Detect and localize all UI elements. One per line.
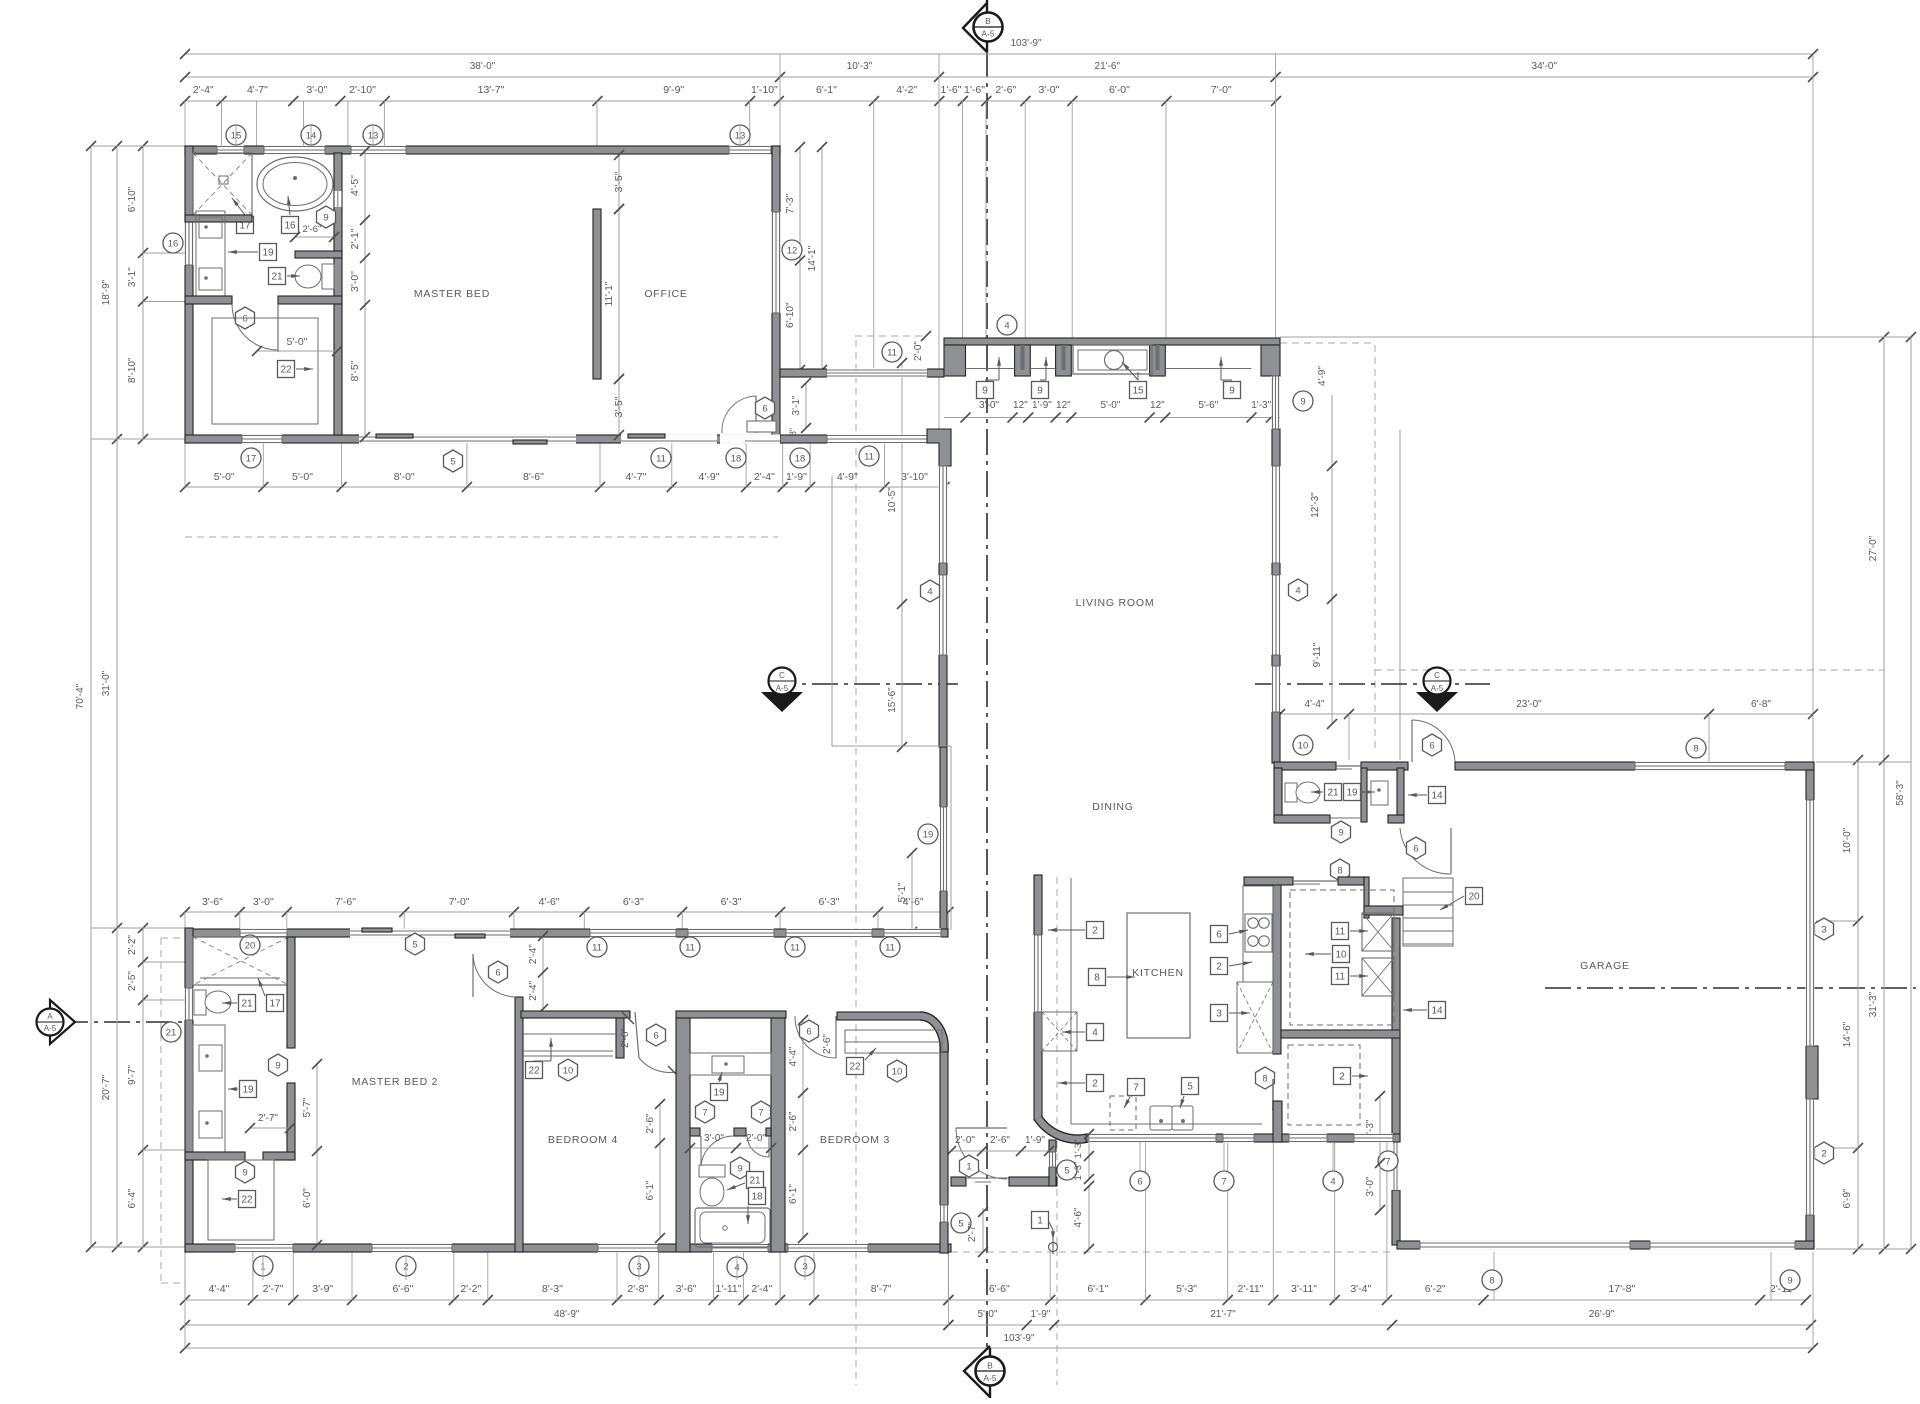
svg-text:5: 5 — [1064, 1166, 1069, 1177]
svg-text:31'-3": 31'-3" — [1868, 991, 1879, 1017]
svg-text:6: 6 — [653, 1031, 658, 1042]
svg-text:9: 9 — [1037, 386, 1043, 397]
svg-text:6: 6 — [242, 314, 247, 325]
svg-text:2'-0": 2'-0" — [913, 341, 924, 361]
svg-text:103'-9": 103'-9" — [1003, 1333, 1034, 1344]
svg-text:31'-0": 31'-0" — [101, 670, 112, 696]
svg-text:8: 8 — [1693, 744, 1698, 755]
svg-text:4'-4": 4'-4" — [788, 1046, 799, 1066]
svg-text:14'-6": 14'-6" — [1842, 1021, 1853, 1047]
svg-text:9: 9 — [275, 1061, 280, 1072]
svg-text:3'-0": 3'-0" — [306, 84, 327, 96]
svg-text:3'-0": 3'-0" — [253, 896, 274, 908]
svg-text:OFFICE: OFFICE — [644, 288, 687, 300]
svg-text:1'-9": 1'-9" — [1025, 1135, 1045, 1146]
svg-text:2'-4": 2'-4" — [528, 944, 539, 964]
svg-text:6'-1": 6'-1" — [816, 84, 837, 96]
svg-text:4: 4 — [1004, 321, 1009, 332]
svg-text:2'-0": 2'-0" — [746, 1133, 766, 1144]
svg-text:48'-9": 48'-9" — [554, 1309, 580, 1320]
svg-text:3'-1": 3'-1" — [127, 267, 138, 287]
svg-text:22: 22 — [849, 1062, 861, 1073]
svg-text:2'-11": 2'-11" — [1238, 1283, 1264, 1295]
svg-text:17: 17 — [246, 454, 257, 465]
svg-text:8'-10": 8'-10" — [127, 357, 138, 383]
svg-text:12": 12" — [1056, 400, 1071, 411]
svg-text:21: 21 — [241, 999, 253, 1010]
svg-text:MASTER BED: MASTER BED — [414, 288, 490, 300]
svg-text:3: 3 — [1216, 1009, 1222, 1020]
svg-text:9: 9 — [1787, 1276, 1792, 1287]
svg-text:15: 15 — [1132, 386, 1144, 397]
svg-text:4'-4": 4'-4" — [1305, 699, 1325, 710]
svg-text:5'-6": 5'-6" — [1198, 400, 1218, 411]
svg-text:2: 2 — [1092, 926, 1098, 937]
svg-text:6: 6 — [762, 404, 767, 415]
svg-text:3'-1": 3'-1" — [791, 395, 802, 415]
svg-text:5'-1": 5'-1" — [897, 882, 908, 902]
svg-text:11: 11 — [790, 943, 800, 954]
svg-text:3'-5": 3'-5" — [613, 396, 625, 417]
svg-text:3'-6": 3'-6" — [676, 1283, 697, 1295]
svg-text:7: 7 — [758, 1108, 763, 1119]
svg-text:4'-9": 4'-9" — [837, 471, 858, 483]
svg-text:5: 5 — [412, 940, 417, 951]
svg-text:6: 6 — [1216, 930, 1222, 941]
svg-text:2'-7": 2'-7" — [258, 1113, 278, 1124]
svg-text:18: 18 — [751, 1192, 763, 1203]
svg-text:6'-1": 6'-1" — [1087, 1283, 1108, 1295]
svg-text:BEDROOM 4: BEDROOM 4 — [548, 1134, 618, 1146]
svg-text:6: 6 — [1429, 741, 1434, 752]
svg-text:9: 9 — [323, 213, 328, 224]
svg-text:11: 11 — [592, 943, 602, 954]
svg-text:12": 12" — [1013, 400, 1028, 411]
svg-text:4'-9": 4'-9" — [699, 471, 720, 483]
svg-text:11: 11 — [1335, 972, 1346, 983]
svg-text:A: A — [47, 1012, 53, 1021]
svg-text:2: 2 — [1092, 1079, 1098, 1090]
svg-text:A-5: A-5 — [981, 29, 995, 39]
svg-text:21: 21 — [166, 1028, 177, 1039]
svg-text:2'-5": 2'-5" — [127, 971, 138, 991]
svg-text:9: 9 — [1338, 828, 1343, 839]
svg-text:2: 2 — [1339, 1072, 1345, 1083]
svg-text:1'-9": 1'-9" — [786, 471, 807, 483]
svg-text:14: 14 — [1431, 1006, 1443, 1017]
svg-text:5'-0": 5'-0" — [292, 471, 313, 483]
svg-text:10: 10 — [563, 1066, 574, 1077]
svg-text:1: 1 — [966, 1162, 971, 1173]
svg-text:11: 11 — [887, 348, 897, 359]
svg-text:8: 8 — [1262, 1074, 1267, 1085]
svg-text:10'-5": 10'-5" — [887, 487, 898, 513]
svg-text:1'-9": 1'-9" — [1032, 400, 1052, 411]
svg-text:7: 7 — [702, 1108, 707, 1119]
svg-text:6'-8": 6'-8" — [1751, 699, 1771, 710]
svg-text:21: 21 — [271, 272, 283, 283]
svg-text:8'-5": 8'-5" — [349, 360, 361, 381]
svg-text:2'-10": 2'-10" — [349, 84, 376, 96]
svg-text:11: 11 — [656, 454, 666, 465]
svg-text:2'-6": 2'-6" — [822, 1034, 833, 1054]
svg-text:8'-3": 8'-3" — [542, 1283, 563, 1295]
svg-text:6'-10": 6'-10" — [785, 302, 796, 328]
svg-text:14'-1": 14'-1" — [807, 245, 818, 271]
svg-text:2'-0": 2'-0" — [955, 1135, 975, 1146]
svg-text:58'-3": 58'-3" — [1895, 780, 1906, 806]
svg-text:3'-0": 3'-0" — [979, 400, 999, 411]
svg-text:1'-6": 1'-6" — [964, 84, 985, 96]
svg-text:2'-8": 2'-8" — [627, 1283, 648, 1295]
svg-text:10: 10 — [1335, 950, 1347, 961]
svg-text:12": 12" — [1150, 400, 1165, 411]
svg-text:18: 18 — [795, 454, 806, 465]
svg-text:11: 11 — [1335, 927, 1346, 938]
svg-text:103'-9": 103'-9" — [1010, 38, 1041, 49]
svg-text:9: 9 — [1300, 397, 1305, 408]
svg-text:10'-0": 10'-0" — [1842, 827, 1853, 853]
svg-text:21'-7": 21'-7" — [1210, 1309, 1236, 1320]
svg-text:2'-4": 2'-4" — [754, 471, 775, 483]
svg-text:13'-7": 13'-7" — [478, 84, 505, 96]
svg-text:19: 19 — [1346, 788, 1358, 799]
svg-text:6'-1": 6'-1" — [788, 1184, 799, 1204]
svg-text:7: 7 — [1221, 1177, 1226, 1188]
svg-text:6'-6": 6'-6" — [392, 1283, 413, 1295]
svg-text:10: 10 — [892, 1067, 903, 1078]
svg-text:6'-6": 6'-6" — [989, 1283, 1010, 1295]
svg-text:21: 21 — [749, 1176, 761, 1187]
svg-text:6'-10": 6'-10" — [127, 186, 138, 212]
svg-text:5'-3": 5'-3" — [1176, 1283, 1197, 1295]
svg-text:4'-7": 4'-7" — [247, 84, 268, 96]
svg-text:6'-3": 6'-3" — [819, 896, 840, 908]
svg-text:38'-0": 38'-0" — [470, 61, 496, 72]
svg-text:8'-0": 8'-0" — [394, 471, 415, 483]
svg-text:5'-7": 5'-7" — [302, 1097, 313, 1117]
svg-text:4: 4 — [1295, 586, 1300, 597]
svg-text:1'-11": 1'-11" — [716, 1283, 742, 1295]
svg-text:8: 8 — [1337, 866, 1342, 877]
svg-text:7: 7 — [1133, 1083, 1139, 1094]
svg-text:9: 9 — [242, 1168, 247, 1179]
svg-text:DINING: DINING — [1092, 801, 1134, 813]
svg-text:6'-2": 6'-2" — [1425, 1283, 1446, 1295]
svg-text:6'-1": 6'-1" — [645, 1180, 656, 1200]
svg-text:2: 2 — [1216, 962, 1222, 973]
svg-text:2'-7": 2'-7" — [263, 1283, 284, 1295]
svg-text:9'-11": 9'-11" — [1312, 642, 1323, 667]
svg-text:18'-9": 18'-9" — [101, 279, 112, 305]
svg-text:5: 5 — [958, 1219, 963, 1230]
svg-text:5'-0": 5'-0" — [287, 336, 308, 348]
svg-text:A-5: A-5 — [776, 684, 789, 693]
svg-text:18: 18 — [731, 454, 742, 465]
svg-text:34'-0": 34'-0" — [1532, 61, 1558, 72]
svg-text:8'-6": 8'-6" — [523, 471, 544, 483]
svg-text:9'-7": 9'-7" — [127, 1065, 138, 1085]
svg-text:19: 19 — [262, 248, 274, 259]
svg-text:6'-4": 6'-4" — [127, 1188, 138, 1208]
svg-text:4'-7": 4'-7" — [625, 471, 646, 483]
svg-text:3'-0": 3'-0" — [349, 271, 361, 292]
svg-text:9: 9 — [1229, 386, 1235, 397]
svg-text:10: 10 — [1298, 741, 1309, 752]
svg-text:19: 19 — [242, 1085, 254, 1096]
svg-text:22: 22 — [280, 365, 292, 376]
svg-text:27'-0": 27'-0" — [1868, 535, 1879, 561]
svg-text:LIVING ROOM: LIVING ROOM — [1076, 597, 1155, 609]
svg-text:11: 11 — [885, 943, 895, 954]
svg-text:20: 20 — [1468, 892, 1480, 903]
svg-text:3'-0": 3'-0" — [1365, 1176, 1376, 1196]
svg-text:2'-6": 2'-6" — [995, 84, 1016, 96]
svg-text:1: 1 — [1037, 1216, 1043, 1227]
svg-text:5'-0": 5'-0" — [978, 1309, 998, 1320]
svg-text:4: 4 — [927, 587, 932, 598]
svg-text:1'-10": 1'-10" — [751, 84, 778, 96]
svg-text:11: 11 — [685, 943, 695, 954]
svg-text:2'-6": 2'-6" — [645, 1113, 656, 1133]
svg-text:BEDROOM 3: BEDROOM 3 — [820, 1134, 890, 1146]
svg-text:11'-1": 11'-1" — [604, 281, 615, 306]
svg-text:2'-6": 2'-6" — [788, 1111, 799, 1131]
svg-text:16: 16 — [284, 221, 296, 232]
svg-text:9'-9": 9'-9" — [663, 84, 684, 96]
svg-text:C: C — [779, 671, 785, 680]
svg-text:1'-9": 1'-9" — [1030, 1309, 1050, 1320]
svg-text:22: 22 — [241, 1195, 253, 1206]
svg-text:1'-3": 1'-3" — [1073, 1162, 1084, 1181]
svg-text:2'-7": 2'-7" — [967, 1222, 978, 1242]
svg-text:4'-6": 4'-6" — [539, 896, 560, 908]
svg-text:20: 20 — [245, 941, 256, 952]
svg-text:11: 11 — [864, 452, 874, 463]
svg-text:2'-6": 2'-6" — [620, 1028, 631, 1048]
svg-text:6: 6 — [1413, 844, 1418, 855]
svg-text:8: 8 — [1094, 973, 1100, 984]
svg-text:KITCHEN: KITCHEN — [1132, 967, 1184, 979]
svg-text:5: 5 — [1187, 1082, 1193, 1093]
svg-text:2'-1": 2'-1" — [349, 228, 361, 249]
svg-text:17'-8": 17'-8" — [1608, 1283, 1635, 1295]
svg-text:4'-4": 4'-4" — [208, 1283, 229, 1295]
svg-text:4: 4 — [1330, 1177, 1335, 1188]
svg-text:23'-0": 23'-0" — [1516, 699, 1542, 710]
svg-text:14: 14 — [1431, 791, 1443, 802]
svg-text:A-5: A-5 — [44, 1024, 57, 1033]
svg-text:5'-0": 5'-0" — [1100, 400, 1120, 411]
svg-text:12: 12 — [787, 246, 798, 257]
svg-text:6: 6 — [806, 1027, 811, 1038]
svg-text:22: 22 — [528, 1066, 540, 1077]
svg-text:16: 16 — [168, 239, 179, 250]
svg-text:5'-0": 5'-0" — [214, 471, 235, 483]
svg-text:A-5: A-5 — [983, 1373, 997, 1383]
svg-text:1'-3": 1'-3" — [1073, 1140, 1084, 1159]
svg-text:20'-7": 20'-7" — [101, 1074, 112, 1100]
svg-text:3'-11": 3'-11" — [1291, 1283, 1317, 1295]
svg-text:4'-5": 4'-5" — [349, 175, 361, 196]
svg-text:6'-0": 6'-0" — [1109, 84, 1130, 96]
svg-text:6'-0": 6'-0" — [302, 1188, 313, 1208]
svg-text:12'-3": 12'-3" — [1310, 492, 1321, 518]
svg-text:B: B — [987, 1361, 993, 1371]
svg-text:7: 7 — [1385, 1157, 1390, 1168]
svg-text:2'-6": 2'-6" — [303, 224, 322, 235]
svg-text:3: 3 — [1821, 925, 1826, 936]
svg-text:7'-3": 7'-3" — [785, 193, 796, 213]
svg-text:6'-9": 6'-9" — [1842, 1188, 1853, 1208]
svg-text:2'-2": 2'-2" — [127, 935, 138, 955]
svg-text:2'-6": 2'-6" — [990, 1135, 1010, 1146]
svg-text:2'-4": 2'-4" — [528, 980, 539, 1000]
svg-text:26'-9": 26'-9" — [1589, 1309, 1615, 1320]
svg-text:A-5: A-5 — [1431, 684, 1444, 693]
svg-text:70'-4": 70'-4" — [75, 683, 86, 709]
svg-text:3'-6": 3'-6" — [202, 896, 223, 908]
svg-text:2'-2": 2'-2" — [460, 1283, 481, 1295]
svg-text:1'-3": 1'-3" — [1251, 400, 1271, 411]
svg-text:21'-6": 21'-6" — [1095, 61, 1121, 72]
svg-text:MASTER BED 2: MASTER BED 2 — [352, 1076, 439, 1088]
svg-text:3'-5": 3'-5" — [613, 171, 625, 192]
svg-text:3'-10": 3'-10" — [901, 471, 928, 483]
svg-text:5: 5 — [450, 457, 455, 468]
svg-text:6: 6 — [1137, 1177, 1142, 1188]
svg-text:19: 19 — [713, 1088, 725, 1099]
svg-text:19: 19 — [923, 830, 934, 841]
svg-text:17: 17 — [269, 999, 281, 1010]
svg-text:9: 9 — [982, 386, 988, 397]
svg-text:9: 9 — [737, 1164, 742, 1175]
svg-text:8: 8 — [1489, 1276, 1494, 1287]
svg-text:4'-2": 4'-2" — [896, 84, 917, 96]
svg-text:10'-3": 10'-3" — [847, 61, 873, 72]
svg-text:B: B — [985, 16, 991, 26]
svg-text:4'-9": 4'-9" — [1317, 366, 1328, 386]
svg-text:2: 2 — [1821, 1149, 1826, 1160]
svg-text:7'-6": 7'-6" — [335, 896, 356, 908]
svg-text:3'-4": 3'-4" — [1350, 1283, 1371, 1295]
svg-text:2'-4": 2'-4" — [193, 84, 214, 96]
svg-text:6'-3": 6'-3" — [721, 896, 742, 908]
svg-text:GARAGE: GARAGE — [1580, 960, 1630, 972]
svg-text:3'-9": 3'-9" — [312, 1283, 333, 1295]
svg-text:7'-0": 7'-0" — [1211, 84, 1232, 96]
svg-text:7'-0": 7'-0" — [449, 896, 470, 908]
svg-text:4'-6": 4'-6" — [1073, 1207, 1084, 1227]
svg-text:6: 6 — [495, 968, 500, 979]
svg-text:C: C — [1434, 671, 1440, 680]
svg-text:8'-7": 8'-7" — [871, 1283, 892, 1295]
svg-text:2'-4": 2'-4" — [751, 1283, 772, 1295]
svg-text:4: 4 — [1092, 1028, 1098, 1039]
svg-text:1'-6": 1'-6" — [941, 84, 962, 96]
svg-text:15'-6": 15'-6" — [887, 687, 898, 713]
svg-text:6'-3": 6'-3" — [623, 896, 644, 908]
svg-text:21: 21 — [1327, 788, 1339, 799]
svg-text:3'-0": 3'-0" — [704, 1133, 724, 1144]
svg-text:3'-0": 3'-0" — [1038, 84, 1059, 96]
